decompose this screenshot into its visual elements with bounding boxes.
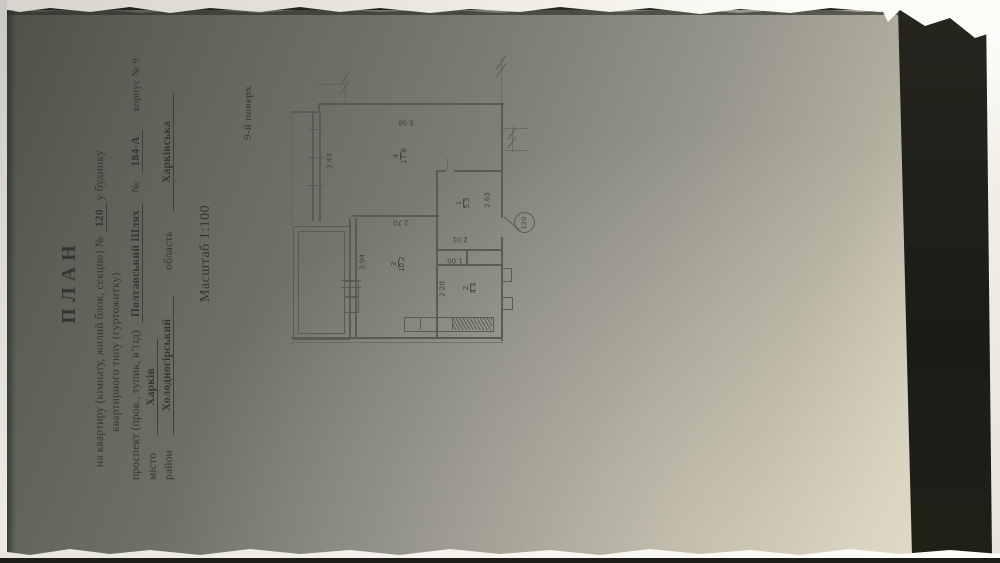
apartment-circle-number: 120 [520,216,528,228]
wall-room1-strip [438,249,502,251]
room-area: 10.2 [399,256,407,272]
room-area: 17.8 [401,148,409,164]
wall-right-lower [501,237,503,341]
wall-room4-room1-b [454,170,502,172]
wall-left-inner [319,111,321,221]
wall-bottom-inner [291,342,503,343]
vent-block-divider [436,317,437,330]
dark-edge-bottom [0,558,1000,563]
wall-stub-lower [501,268,512,282]
dimension-2-01: 2.01 [452,235,468,242]
room-label-3: 3 10.2 [391,256,407,272]
wall-top-step-h [291,111,320,113]
dimension-2-20: 2.20 [439,281,446,297]
balcony-inner-outline [298,231,345,334]
window-tick [308,157,323,158]
room-area: 4.4 [471,282,479,293]
wall-right-upper [501,103,503,218]
apartment-number-circle: 120 [514,212,535,233]
vent-block-divider [420,317,421,330]
paper-edge-shadow-left [7,10,16,555]
room-area: 5.3 [464,197,472,208]
wall-left-outer [312,111,314,221]
dimension-3-43: 3.43 [326,153,333,169]
dimension-1-00: 1.00 [447,256,463,263]
room-label-4: 4 17.8 [393,148,409,164]
floor-plan-drawing: 120 5.98 3.43 2.70 3.94 2.63 2.01 1.00 2… [0,0,1000,563]
extension-line-top-right [501,58,502,104]
wall-extension-left [291,112,292,226]
dimension-3-94: 3.94 [359,254,366,270]
window-tick [308,185,323,186]
photo-of-floor-plan-document: { "document": { "title": "ПЛАН", "line1_… [0,0,1000,563]
room-label-1: 1 5.3 [456,197,472,208]
torn-edge-left [0,0,7,563]
dimension-5-98: 5.98 [398,118,414,125]
wall-balcony-a [349,218,351,338]
wall-stub-lower [501,297,513,310]
door-leaf-room1 [447,158,448,170]
balcony-door-sill [344,281,359,297]
room-label-2: 2 4.4 [463,282,479,293]
dimension-2-70: 2.70 [393,218,409,225]
wall-vertical-divider [436,170,438,338]
vent-block-hatch [452,317,492,330]
wall-room4-room1-a [438,170,446,172]
wall-strip-divider [466,250,468,265]
window-tick [308,129,323,130]
balcony-door-sill [344,297,359,313]
wall-balcony-b [355,218,357,338]
neighbor-wall-stub [503,150,528,151]
dimension-2-63: 2.63 [484,192,491,208]
wall-room4-room3 [351,215,439,217]
